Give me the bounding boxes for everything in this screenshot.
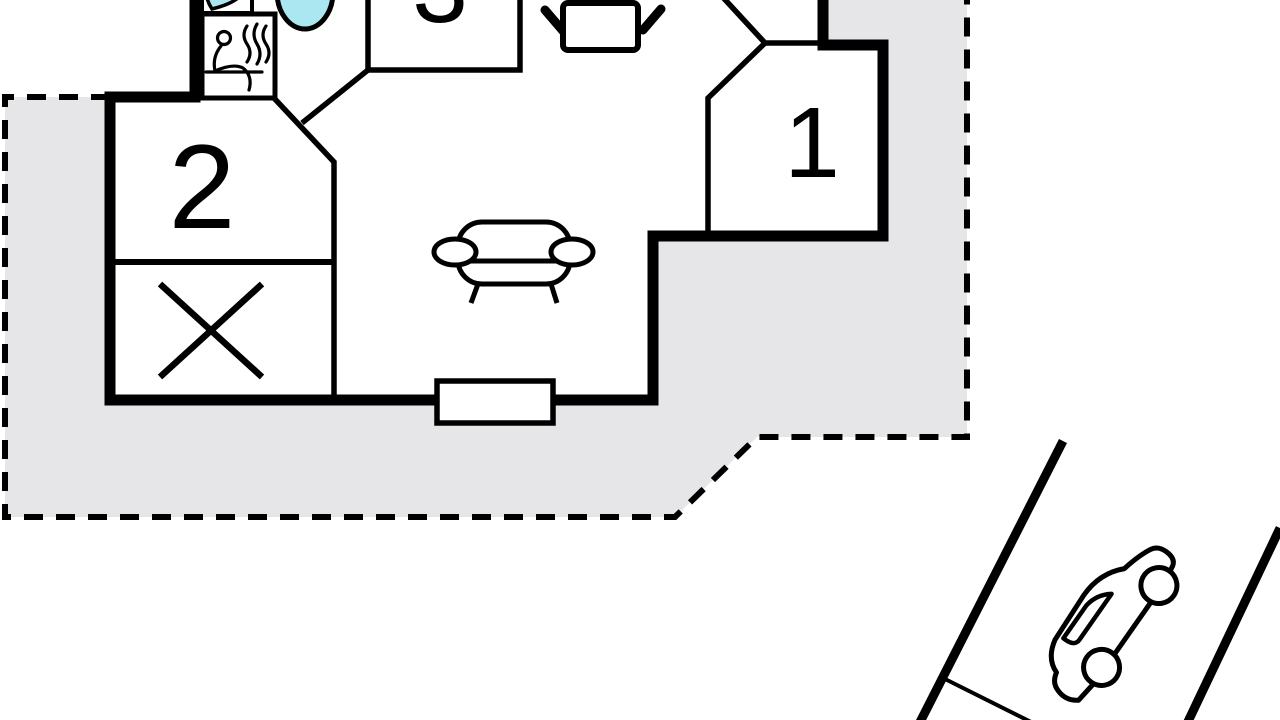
parking-space-divider bbox=[943, 678, 1049, 720]
room-1-label: 1 bbox=[784, 87, 840, 199]
floor-plan-drawing: 2 1 3 bbox=[0, 0, 1280, 720]
floor-plan-canvas: 2 1 3 bbox=[0, 0, 1280, 720]
parking-area bbox=[916, 441, 1280, 720]
car-icon bbox=[1030, 527, 1192, 715]
room-2-label: 2 bbox=[169, 120, 236, 254]
driveway-left-edge bbox=[916, 441, 1063, 720]
terrace-door bbox=[437, 381, 553, 423]
driveway-right-edge bbox=[1184, 528, 1280, 720]
room-3-label: 3 bbox=[412, 0, 468, 44]
